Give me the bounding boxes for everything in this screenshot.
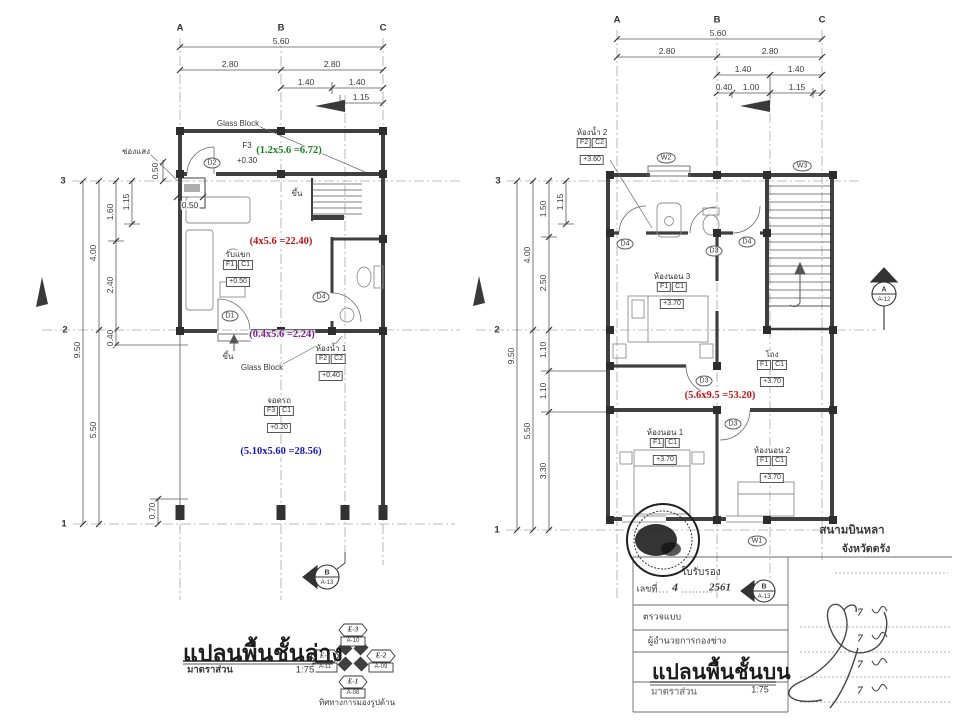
dim-label: 2.80: [221, 60, 240, 69]
window-tag-w1: W1: [748, 536, 767, 547]
floor-tag: F2: [577, 138, 591, 148]
section-marker-label: B: [760, 584, 767, 591]
ceiling-tag: C1: [279, 406, 294, 416]
room-name: ห้องนอน 3: [654, 272, 690, 281]
dim-label: 5.50: [89, 421, 98, 440]
dim-label: 1.40: [734, 65, 753, 74]
room-label-hall: โถง F1C1 +3.70: [757, 350, 787, 389]
row-director-label: ผู้อำนวยการกองช่าง: [647, 637, 727, 646]
dim-label: 1.15: [556, 193, 565, 212]
door-tag-d3: D3: [725, 419, 742, 430]
section-marker-sheet: A-13: [757, 594, 772, 600]
door-tag-d2: D2: [204, 158, 221, 169]
scale-value: 1:75: [295, 665, 316, 675]
level-tag: +0.20: [267, 423, 291, 433]
area-calc-red: (5.6x9.5 =53.20): [684, 391, 757, 402]
dim-label: 5.60: [709, 29, 728, 38]
level-tag: +0.40: [319, 371, 343, 381]
door-tag-d4: D4: [313, 292, 330, 303]
dim-label: 1.10: [539, 382, 548, 401]
dim-label: 0.50: [181, 201, 200, 210]
date-stamp-mark: 7: [856, 660, 864, 671]
dim-label: 9.50: [507, 347, 516, 366]
ceiling-tag: C1: [772, 360, 787, 370]
section-marker-sheet: A-12: [877, 297, 892, 303]
compass-north-code: E-3: [347, 627, 360, 634]
dim-label: 2.80: [323, 60, 342, 69]
dim-label: 0.40: [106, 329, 115, 348]
dim-label: 5.50: [523, 422, 532, 441]
dim-label: 2.80: [761, 47, 780, 56]
room-name: โถง: [757, 350, 787, 359]
glass-block-note: Glass Block: [216, 120, 260, 128]
door-tag-d4: D4: [739, 237, 756, 248]
dim-label: 0.40: [715, 83, 734, 92]
floor-tag: F1: [757, 456, 771, 466]
ceiling-tag: C1: [665, 438, 680, 448]
dim-label: 1.60: [106, 203, 115, 222]
grid-lines: [42, 30, 876, 600]
floor-tag: F2: [316, 354, 330, 364]
dim-label: 0.50: [151, 162, 160, 181]
dim-label: 1.00: [742, 83, 761, 92]
grid-bubble-1: 1: [493, 525, 500, 535]
grid-bubble-3: 3: [494, 176, 501, 186]
room-label-entry: F3 +0.30: [237, 141, 257, 169]
room-name: ห้องน้ำ 2: [577, 128, 608, 137]
compass-east-sheet: A-09: [374, 664, 389, 670]
dim-label: 1.15: [352, 93, 371, 102]
compass-south-sheet: A-08: [346, 690, 361, 696]
dim-label: 1.50: [539, 200, 548, 219]
level-tag: +3.70: [653, 455, 677, 465]
dim-label: 1.15: [122, 193, 131, 212]
stamp-location-line2: จังหวัดตรัง: [841, 544, 892, 555]
room-name: ห้องนอน 2: [754, 446, 790, 455]
room-label-bed2: ห้องนอน 2 F1C1 +3.70: [754, 446, 790, 485]
certificate-number-label: เลขที่: [636, 585, 659, 594]
dimension-lines: [83, 39, 822, 530]
scale-label: มาตราส่วน: [186, 665, 234, 675]
room-name: ห้องนอน 1: [647, 428, 683, 437]
floor-tag: F3: [264, 406, 278, 416]
dim-label: 5.60: [272, 37, 291, 46]
compass-north-sheet: A-10: [346, 638, 361, 644]
date-stamp-mark: 7: [856, 686, 864, 697]
room-name: ห้องน้ำ 1: [316, 344, 347, 353]
door-tag-d1: D1: [222, 311, 239, 322]
compass-south-code: E-1: [347, 679, 360, 686]
grid-bubble-b: B: [713, 15, 722, 25]
room-label-bath1: ห้องน้ำ 1 F2C2 +0.40: [316, 344, 347, 383]
level-tag: +0.30: [237, 156, 257, 165]
stair-up-note: ขึ้น: [291, 190, 304, 198]
entry-up-note: ขึ้น: [222, 353, 235, 361]
left-plan-furniture: [186, 197, 383, 322]
floor-tag: F1: [657, 282, 671, 292]
room-label-bed3: ห้องนอน 3 F1C1 +3.70: [654, 272, 690, 311]
grid-bubble-3: 3: [59, 176, 66, 186]
compass-caption: ทิศทางการมองรูปด้าน: [318, 699, 396, 707]
plan-linework: [0, 0, 960, 720]
ceiling-tag: C1: [238, 260, 253, 270]
ceiling-tag: C1: [672, 282, 687, 292]
left-plan-walls: [178, 129, 385, 520]
vent-note: ช่องแสง: [121, 148, 151, 156]
door-tag-d4: D4: [617, 239, 634, 250]
level-tag: +3.70: [760, 473, 784, 483]
floor-tag: F1: [757, 360, 771, 370]
level-tag: +0.50: [226, 277, 250, 287]
right-stair-arrow: [769, 263, 830, 307]
scale-value: 1:75: [750, 686, 770, 695]
dim-label: 0.70: [148, 502, 157, 521]
level-tag: +3.70: [660, 299, 684, 309]
signature-ink: [789, 604, 887, 708]
left-entry-arrow: [230, 335, 238, 351]
room-label-living: รับแขก F1C1 +0.50: [223, 250, 253, 289]
ceiling-tag: C2: [592, 138, 607, 148]
grid-bubble-a: A: [613, 15, 622, 25]
room-name: รับแขก: [223, 250, 253, 259]
grid-bubble-2: 2: [61, 325, 68, 335]
dim-label: 1.10: [539, 341, 548, 360]
compass-west-sheet: A-11: [318, 664, 332, 670]
dim-label: 9.50: [73, 341, 82, 360]
room-label-carport: จอดรถ F3C1 +0.20: [264, 396, 294, 435]
ceiling-tag: C2: [331, 354, 346, 364]
floor-tag: F1: [650, 438, 664, 448]
date-stamp-mark: 7: [856, 634, 864, 645]
dim-label: 2.40: [106, 276, 115, 295]
floor-tag: F3: [242, 141, 251, 150]
area-calc-green: (1.2x5.6 =6.72): [255, 146, 322, 157]
floor-tag: F1: [223, 260, 237, 270]
grid-bubble-a: A: [176, 23, 185, 33]
row-check-label: ตรวจแบบ: [642, 613, 682, 622]
room-label-bed1: ห้องนอน 1 F1C1 +3.70: [647, 428, 683, 467]
door-tag-d3: D3: [696, 376, 713, 387]
section-marker-label: B: [323, 570, 330, 577]
room-name: จอดรถ: [264, 396, 294, 405]
window-tag-w3: W3: [793, 161, 812, 172]
dim-label: 2.50: [539, 274, 548, 293]
door-tag-d3: D3: [706, 246, 723, 257]
right-plan-title: แปลนพื้นชั้นบน: [652, 656, 791, 689]
dim-label: 1.40: [297, 78, 316, 87]
dim-label: 3.30: [539, 462, 548, 481]
grid-bubble-c: C: [379, 23, 388, 33]
dim-label: 4.00: [89, 244, 98, 263]
window-tag-w2: W2: [657, 153, 676, 164]
dim-label: 1.40: [787, 65, 806, 74]
area-calc-red: (4x5.6 =22.40): [249, 237, 314, 248]
scale-label: มาตราส่วน: [650, 687, 698, 697]
dim-label: 2.80: [658, 47, 677, 56]
dim-label: 4.00: [523, 246, 532, 265]
glass-block-note: Glass Block: [240, 364, 284, 372]
compass-east-code: E-2: [375, 653, 388, 660]
area-calc-purple: (0.4x5.6 =2.24): [248, 330, 315, 341]
dim-label: 1.40: [348, 78, 367, 87]
compass-west-code: E-4: [319, 653, 332, 660]
official-stamp: [627, 504, 699, 576]
section-marker-sheet: A-13: [320, 580, 335, 586]
grid-bubble-1: 1: [60, 519, 67, 529]
area-calc-blue: (5.10x5.60 =28.56): [239, 447, 322, 458]
grid-bubble-c: C: [818, 15, 827, 25]
room-label-bath2: ห้องน้ำ 2 F2C2 +3.60: [577, 128, 608, 167]
grid-bubble-b: B: [277, 23, 286, 33]
ceiling-tag: C1: [772, 456, 787, 466]
certificate-number-value: 4: [671, 581, 679, 593]
certificate-year-value: 2561: [708, 583, 732, 594]
dim-label: 1.15: [788, 83, 807, 92]
section-marker-label: A: [880, 287, 887, 294]
level-tag: +3.60: [580, 155, 604, 165]
level-tag: +3.70: [760, 377, 784, 387]
floor-plan-sheet: A B C 3 2 1 A B C 3 2 1 5.60 2.80 2.80 1…: [0, 0, 960, 720]
section-markers: [303, 268, 897, 602]
certificate-label: ใบรับรอง: [680, 568, 721, 578]
grid-bubble-2: 2: [493, 325, 500, 335]
stamp-location-line1: สนามบินหลา: [818, 525, 885, 537]
right-plan-walls: [606, 166, 834, 522]
date-stamp-mark: 7: [856, 608, 864, 619]
